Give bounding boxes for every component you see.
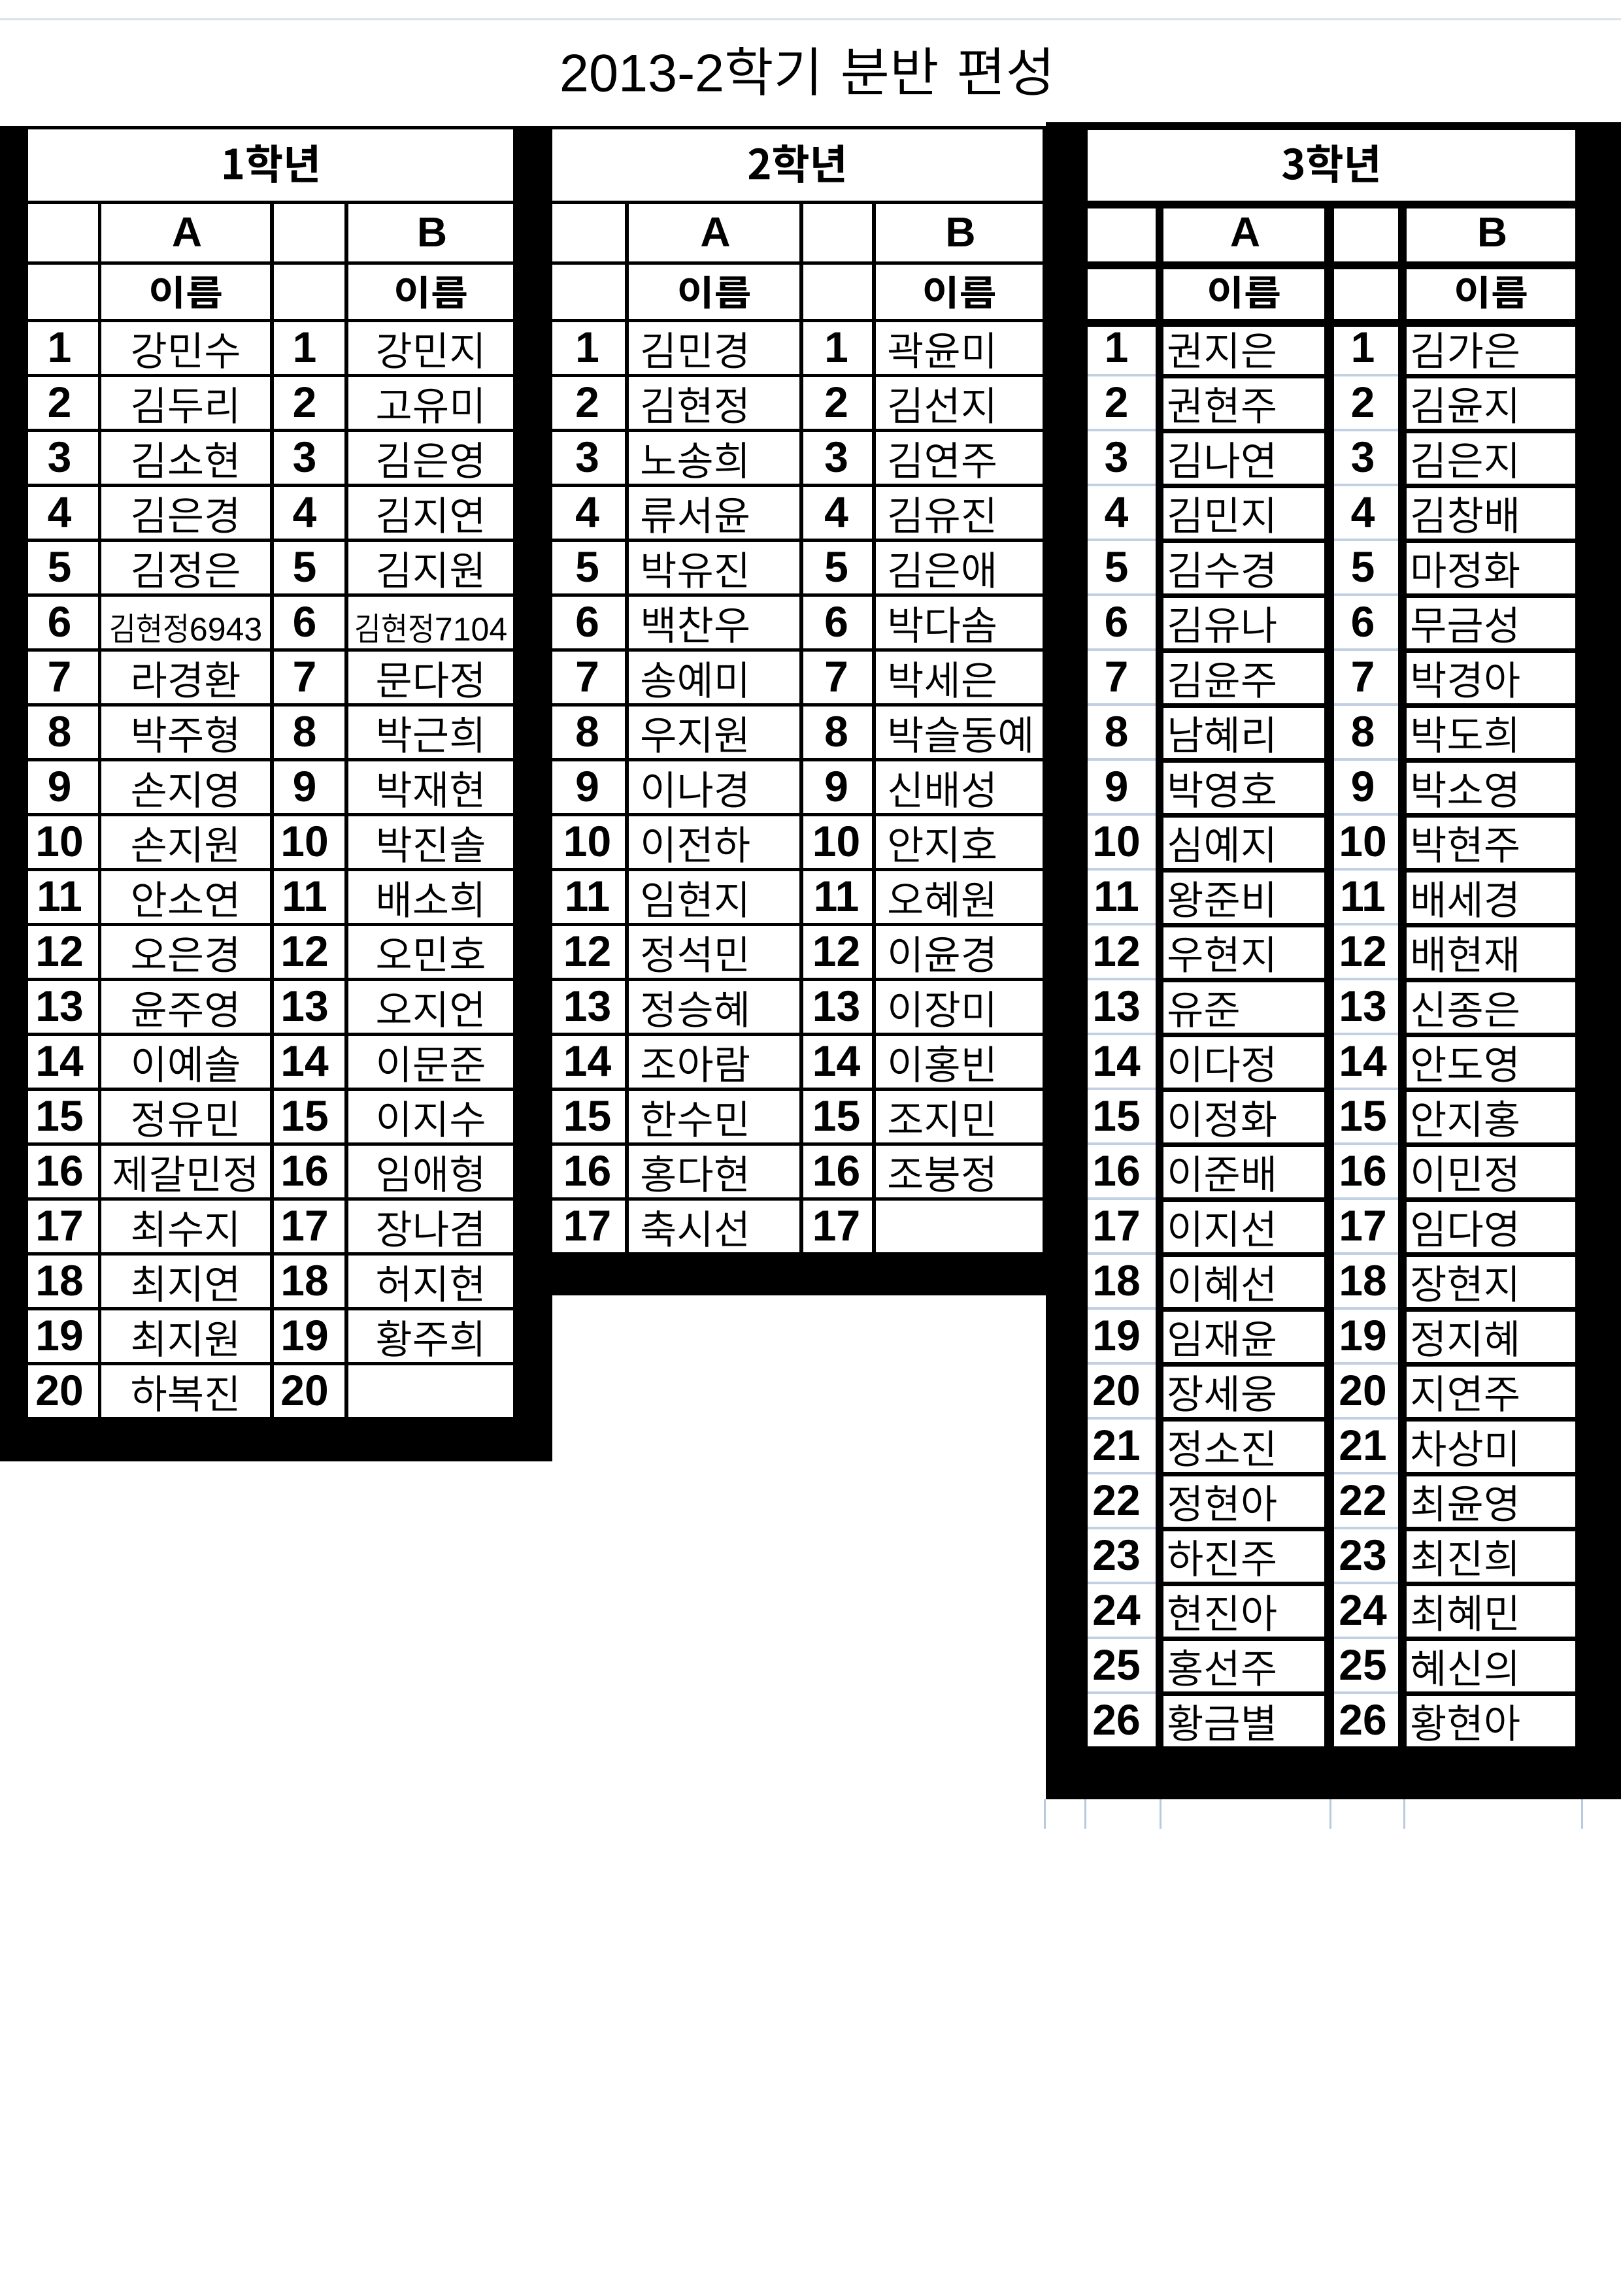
svg-text:3: 3 [1351,433,1375,481]
svg-text:2: 2 [293,378,317,426]
svg-text:15: 15 [35,1091,83,1140]
svg-text:16: 16 [35,1146,83,1195]
svg-text:2: 2 [575,378,599,426]
svg-text:17: 17 [1339,1201,1386,1250]
svg-text:19: 19 [280,1311,328,1359]
svg-text:6: 6 [1351,597,1375,646]
svg-text:24: 24 [1092,1586,1141,1634]
svg-text:3: 3 [824,433,848,481]
svg-text:26: 26 [1339,1695,1386,1744]
svg-text:23: 23 [1092,1531,1140,1579]
svg-text:10: 10 [1092,817,1140,865]
svg-text:8: 8 [1351,707,1375,756]
svg-text:25: 25 [1092,1640,1140,1689]
svg-text:26: 26 [1092,1695,1140,1744]
svg-text:14: 14 [812,1037,861,1085]
svg-text:3: 3 [575,433,599,481]
svg-text:1: 1 [824,323,848,371]
svg-text:A: A [1230,208,1260,256]
svg-text:12: 12 [812,927,860,975]
svg-text:12: 12 [1092,927,1140,975]
svg-text:8: 8 [48,707,72,756]
svg-text:15: 15 [280,1091,328,1140]
svg-text:5: 5 [1351,542,1375,591]
svg-text:13: 13 [35,982,83,1030]
svg-text:12: 12 [563,927,611,975]
svg-text:20: 20 [1339,1366,1386,1414]
svg-text:12: 12 [35,927,83,975]
svg-text:10: 10 [812,817,860,865]
svg-text:11: 11 [1340,872,1386,920]
svg-text:13: 13 [1339,982,1386,1030]
svg-text:5: 5 [48,542,72,591]
svg-text:4: 4 [1351,488,1375,536]
svg-text:14: 14 [1092,1037,1141,1085]
svg-text:6: 6 [293,597,317,646]
svg-text:A: A [172,208,202,256]
svg-text:B: B [417,208,447,256]
svg-text:14: 14 [35,1037,84,1085]
svg-text:17: 17 [1092,1201,1140,1250]
svg-text:4: 4 [48,488,72,536]
svg-text:8: 8 [824,707,848,756]
svg-text:7: 7 [1105,652,1129,701]
svg-text:10: 10 [280,817,328,865]
svg-text:9: 9 [1351,762,1375,810]
svg-text:A: A [700,208,730,256]
svg-text:4: 4 [293,488,317,536]
svg-text:4: 4 [1105,488,1129,536]
svg-text:13: 13 [280,982,328,1030]
svg-text:15: 15 [1092,1091,1140,1140]
svg-text:6943: 6943 [190,611,262,648]
svg-text:24: 24 [1339,1586,1387,1634]
svg-text:19: 19 [1092,1311,1140,1359]
svg-text:2: 2 [1351,378,1375,426]
svg-text:12: 12 [1339,927,1386,975]
svg-text:17: 17 [812,1201,860,1250]
svg-text:15: 15 [1339,1091,1386,1140]
svg-text:20: 20 [35,1366,83,1414]
svg-text:7: 7 [293,652,317,701]
svg-text:5: 5 [1105,542,1129,591]
svg-text:20: 20 [1092,1366,1140,1414]
svg-text:6: 6 [824,597,848,646]
svg-text:1: 1 [48,323,72,371]
svg-text:23: 23 [1339,1531,1386,1579]
svg-text:4: 4 [824,488,848,536]
svg-text:18: 18 [1092,1256,1140,1305]
svg-text:6: 6 [48,597,72,646]
svg-text:13: 13 [1092,982,1140,1030]
svg-text:16: 16 [280,1146,328,1195]
svg-text:17: 17 [35,1201,83,1250]
svg-text:14: 14 [563,1037,612,1085]
svg-text:9: 9 [48,762,72,810]
svg-text:16: 16 [1339,1146,1386,1195]
svg-text:5: 5 [575,542,599,591]
svg-text:11: 11 [1094,872,1139,920]
svg-text:8: 8 [575,707,599,756]
svg-text:11: 11 [37,872,82,920]
svg-text:B: B [945,208,975,256]
svg-text:B: B [1477,208,1507,256]
svg-text:9: 9 [824,762,848,810]
svg-text:21: 21 [1339,1421,1386,1469]
svg-text:16: 16 [563,1146,611,1195]
svg-text:13: 13 [563,982,611,1030]
svg-text:17: 17 [563,1201,611,1250]
svg-text:12: 12 [280,927,328,975]
svg-text:4: 4 [575,488,599,536]
svg-text:11: 11 [565,872,610,920]
svg-text:7104: 7104 [435,611,507,648]
svg-text:10: 10 [35,817,83,865]
svg-text:17: 17 [280,1201,328,1250]
svg-text:15: 15 [563,1091,611,1140]
svg-text:14: 14 [1339,1037,1387,1085]
svg-text:1: 1 [575,323,599,371]
svg-text:5: 5 [293,542,317,591]
svg-text:10: 10 [1339,817,1386,865]
svg-text:18: 18 [35,1256,83,1305]
svg-text:13: 13 [812,982,860,1030]
svg-text:9: 9 [1105,762,1129,810]
svg-text:7: 7 [575,652,599,701]
svg-text:2: 2 [48,378,72,426]
svg-text:22: 22 [1092,1476,1140,1524]
svg-text:20: 20 [280,1366,328,1414]
svg-text:15: 15 [812,1091,860,1140]
svg-text:14: 14 [280,1037,329,1085]
svg-text:2: 2 [1105,378,1129,426]
svg-text:7: 7 [824,652,848,701]
svg-text:7: 7 [1351,652,1375,701]
svg-text:21: 21 [1092,1421,1140,1469]
svg-text:8: 8 [293,707,317,756]
svg-text:25: 25 [1339,1640,1386,1689]
svg-text:10: 10 [563,817,611,865]
svg-text:7: 7 [48,652,72,701]
svg-text:11: 11 [282,872,327,920]
svg-text:3: 3 [48,433,72,481]
svg-text:6: 6 [1105,597,1129,646]
svg-text:16: 16 [1092,1146,1140,1195]
svg-text:9: 9 [293,762,317,810]
svg-text:1: 1 [1351,323,1375,371]
svg-text:5: 5 [824,542,848,591]
svg-text:9: 9 [575,762,599,810]
svg-text:19: 19 [35,1311,83,1359]
svg-text:3: 3 [1105,433,1129,481]
svg-text:19: 19 [1339,1311,1386,1359]
svg-text:1: 1 [1105,323,1129,371]
svg-text:11: 11 [814,872,860,920]
svg-text:8: 8 [1105,707,1129,756]
svg-text:6: 6 [575,597,599,646]
svg-text:3: 3 [293,433,317,481]
svg-text:22: 22 [1339,1476,1386,1524]
svg-text:18: 18 [280,1256,328,1305]
svg-text:16: 16 [812,1146,860,1195]
svg-text:2013-2: 2013-2 [560,44,724,103]
svg-text:18: 18 [1339,1256,1386,1305]
svg-text:2: 2 [824,378,848,426]
svg-text:1: 1 [293,323,317,371]
